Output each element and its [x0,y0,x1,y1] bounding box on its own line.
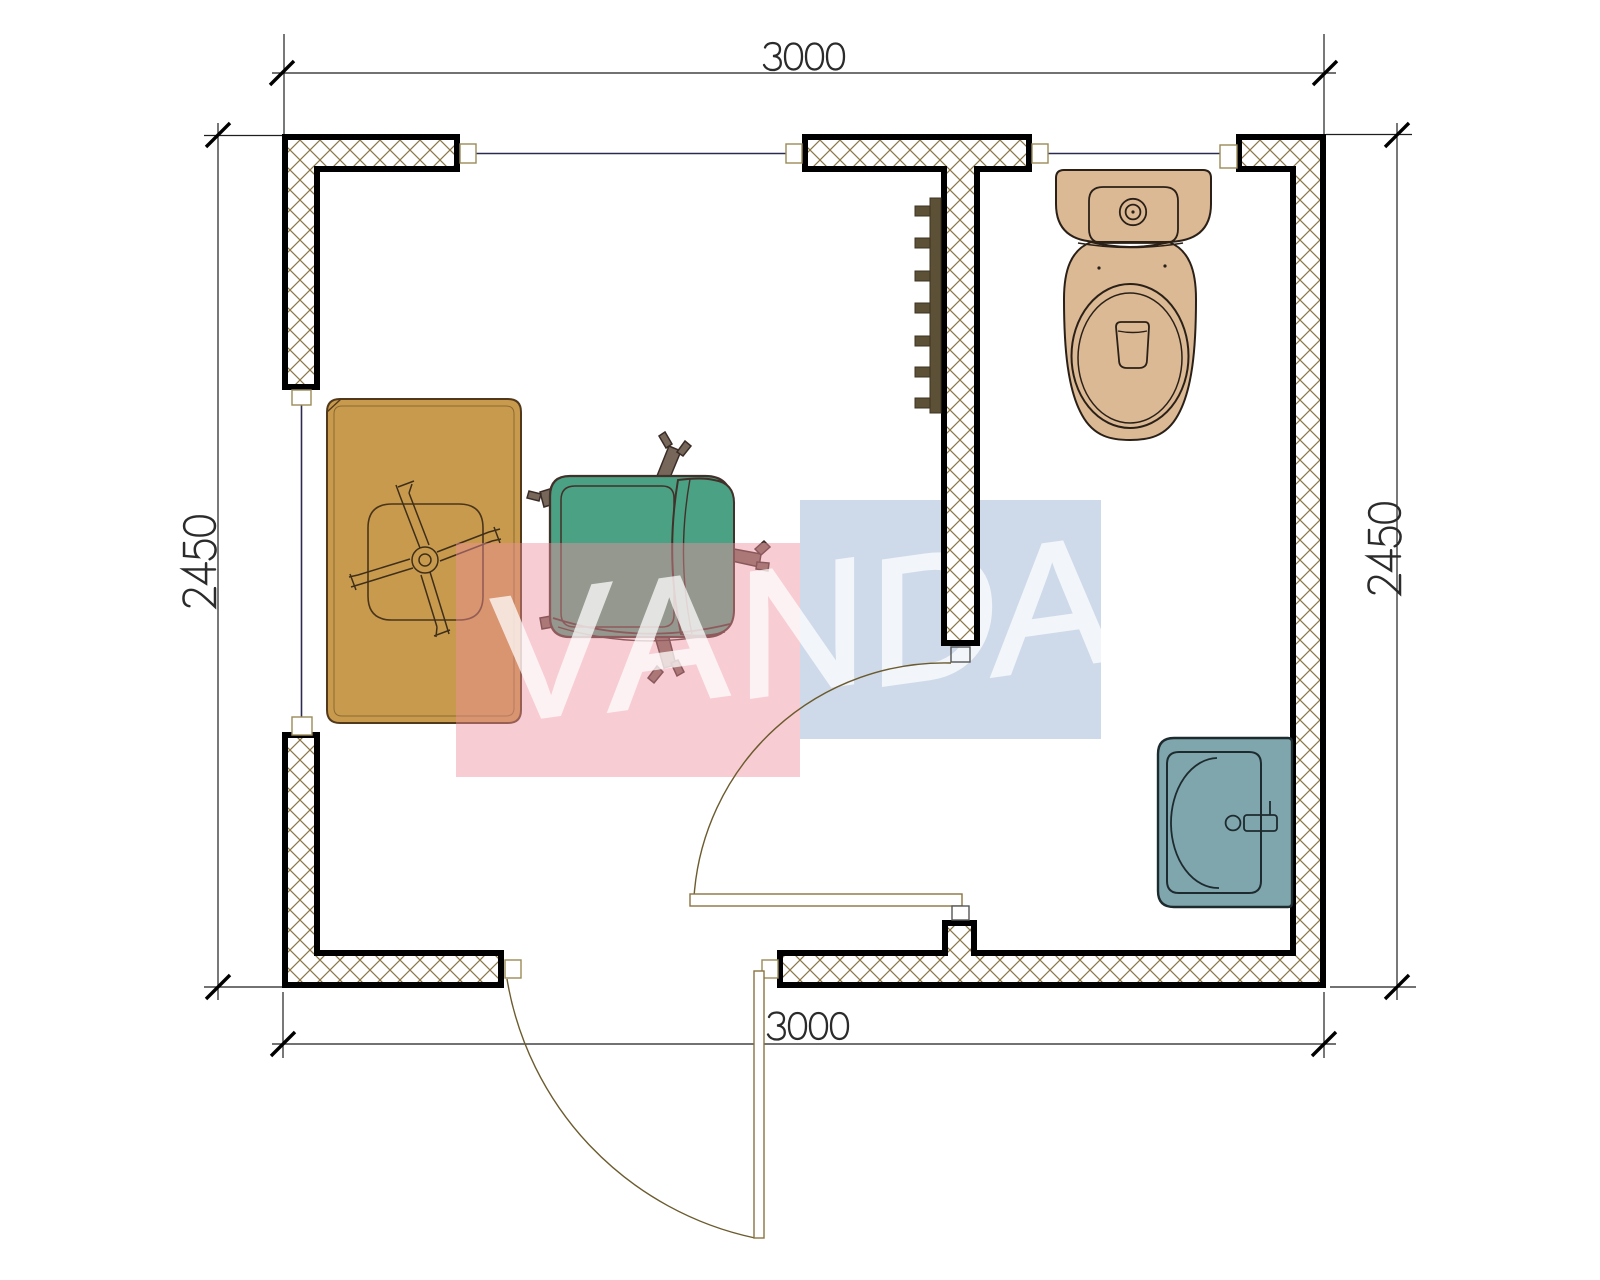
svg-text:V: V [491,545,611,763]
svg-text:A: A [609,532,729,750]
svg-text:A: A [992,497,1112,715]
svg-text:N: N [737,519,867,738]
